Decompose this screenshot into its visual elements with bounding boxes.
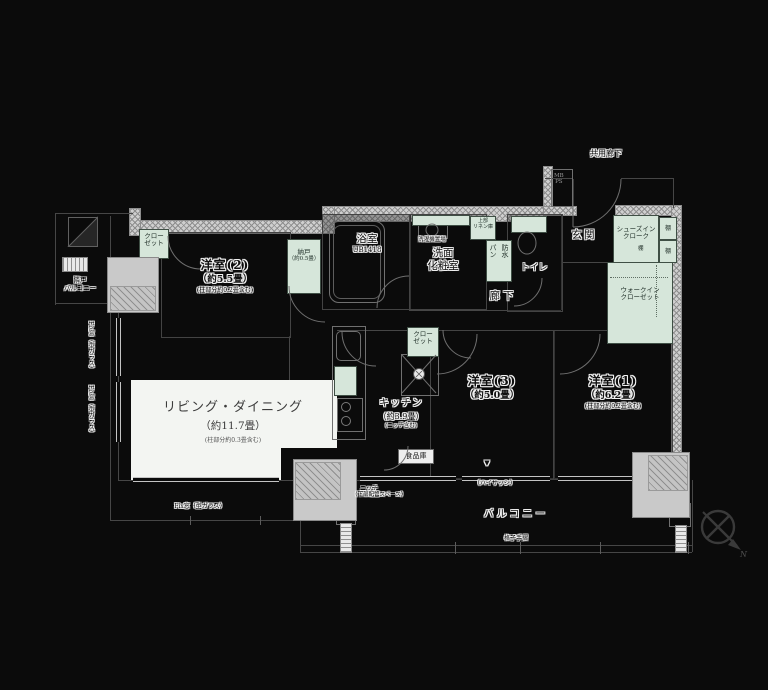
label-living-dining: リビング・ダイニング （約11.7畳） (柱部分約0.3畳含む): [140, 396, 326, 444]
compass-north-label: N: [740, 551, 747, 560]
label-high-sash: （ハイサッシ）: [463, 480, 527, 487]
label-neighbor-balcony: 隣戸 バルコニー: [56, 277, 104, 293]
label-railing: 格子手摺: [494, 535, 538, 542]
label-washroom: 洗面 化粧室: [408, 247, 478, 272]
plan-symbol-overlay: [0, 0, 768, 690]
label-washer: 洗濯機置場: [406, 237, 458, 244]
door-arc-bedroom1: [560, 334, 600, 374]
washer-drum: [426, 224, 438, 236]
label-hallway: 廊下: [478, 290, 528, 303]
label-fix-window-south: Fix窓（型ガラス）: [158, 503, 242, 510]
label-bedroom2: 洋室(2) （約5.5畳） (柱部分約0.2畳含む): [163, 258, 287, 294]
label-common-corridor: 共用廊下: [580, 149, 632, 159]
label-fix-window-west-1: Fix窓（型ガラス）: [87, 314, 94, 380]
label-bath: 浴室 UB1418: [336, 233, 398, 254]
label-balcony: バルコニー: [478, 509, 554, 521]
door-arc-pantry: [384, 446, 408, 470]
floor-plan: クロー ゼット 納戸 （約0.5畳） 上部 リネン庫 防水 パン シューズイン …: [0, 0, 768, 690]
label-fix-window-west-2: Fix窓（型ガラス）: [87, 377, 94, 445]
label-niche: ニッチ （下部配管スペース）: [352, 485, 428, 499]
label-kitchen: キッチン （約3.9畳） (ニッチ含む): [362, 398, 440, 429]
label-toilet: トイレ: [509, 263, 559, 274]
label-bedroom3: 洋室(3) （約5.0畳）: [432, 374, 552, 402]
label-entrance: 玄関: [558, 229, 610, 242]
door-arc-bath: [377, 276, 409, 308]
toilet-bowl: [518, 232, 536, 254]
window-direction-mark: ▼: [480, 459, 494, 467]
door-arc-kitchen-closet: [443, 330, 471, 358]
label-bedroom1: 洋室(1) （約6.2畳） (柱部分約0.2畳含む): [555, 374, 671, 410]
compass-arrowhead: [728, 539, 741, 550]
door-arc-hall-living: [342, 332, 376, 366]
label-meter-box: MB PS: [554, 173, 564, 185]
door-arc-entrance: [573, 179, 621, 227]
door-arc-bedroom2: [289, 286, 325, 322]
